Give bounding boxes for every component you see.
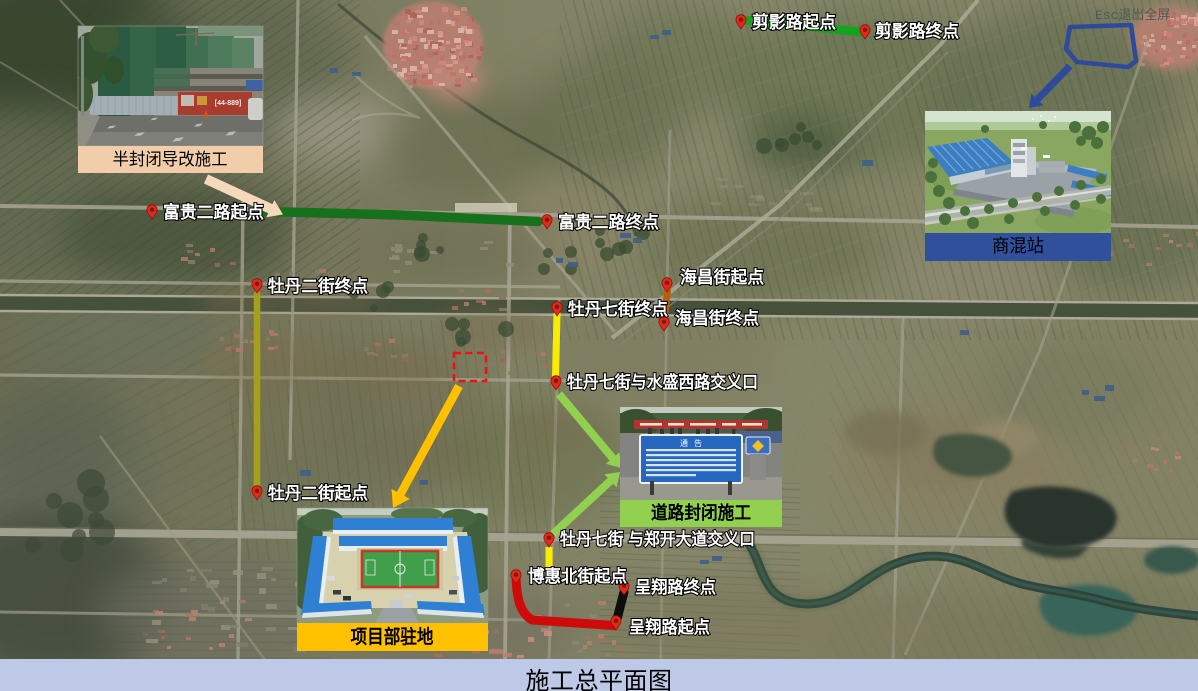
svg-text:富贵二路终点: 富贵二路终点	[558, 212, 659, 232]
svg-text:博惠北街起点: 博惠北街起点	[528, 566, 627, 586]
svg-text:海昌街起点: 海昌街起点	[680, 267, 764, 287]
svg-text:呈翔路起点: 呈翔路起点	[629, 617, 710, 637]
svg-text:呈翔路终点: 呈翔路终点	[635, 577, 716, 597]
svg-text:项目部驻地: 项目部驻地	[351, 625, 434, 648]
svg-text:剪影路终点: 剪影路终点	[875, 21, 959, 41]
svg-text:Esc退出全屏: Esc退出全屏	[1095, 7, 1170, 23]
svg-text:牡丹七街终点: 牡丹七街终点	[568, 299, 668, 319]
svg-text:商混站: 商混站	[992, 236, 1044, 256]
svg-text:牡丹七街与水盛西路交义口: 牡丹七街与水盛西路交义口	[567, 372, 758, 392]
svg-text:牡丹七街 与郑开大道交义口: 牡丹七街 与郑开大道交义口	[560, 529, 755, 549]
svg-text:半封闭导改施工: 半封闭导改施工	[113, 150, 228, 169]
svg-text:道路封闭施工: 道路封闭施工	[651, 502, 751, 523]
svg-text:牡丹二街起点: 牡丹二街起点	[268, 483, 368, 503]
svg-text:富贵二路起点: 富贵二路起点	[163, 202, 264, 222]
svg-text:牡丹二街终点: 牡丹二街终点	[268, 276, 368, 296]
svg-text:剪影路起点: 剪影路起点	[752, 12, 836, 32]
svg-text:海昌街终点: 海昌街终点	[675, 308, 759, 328]
